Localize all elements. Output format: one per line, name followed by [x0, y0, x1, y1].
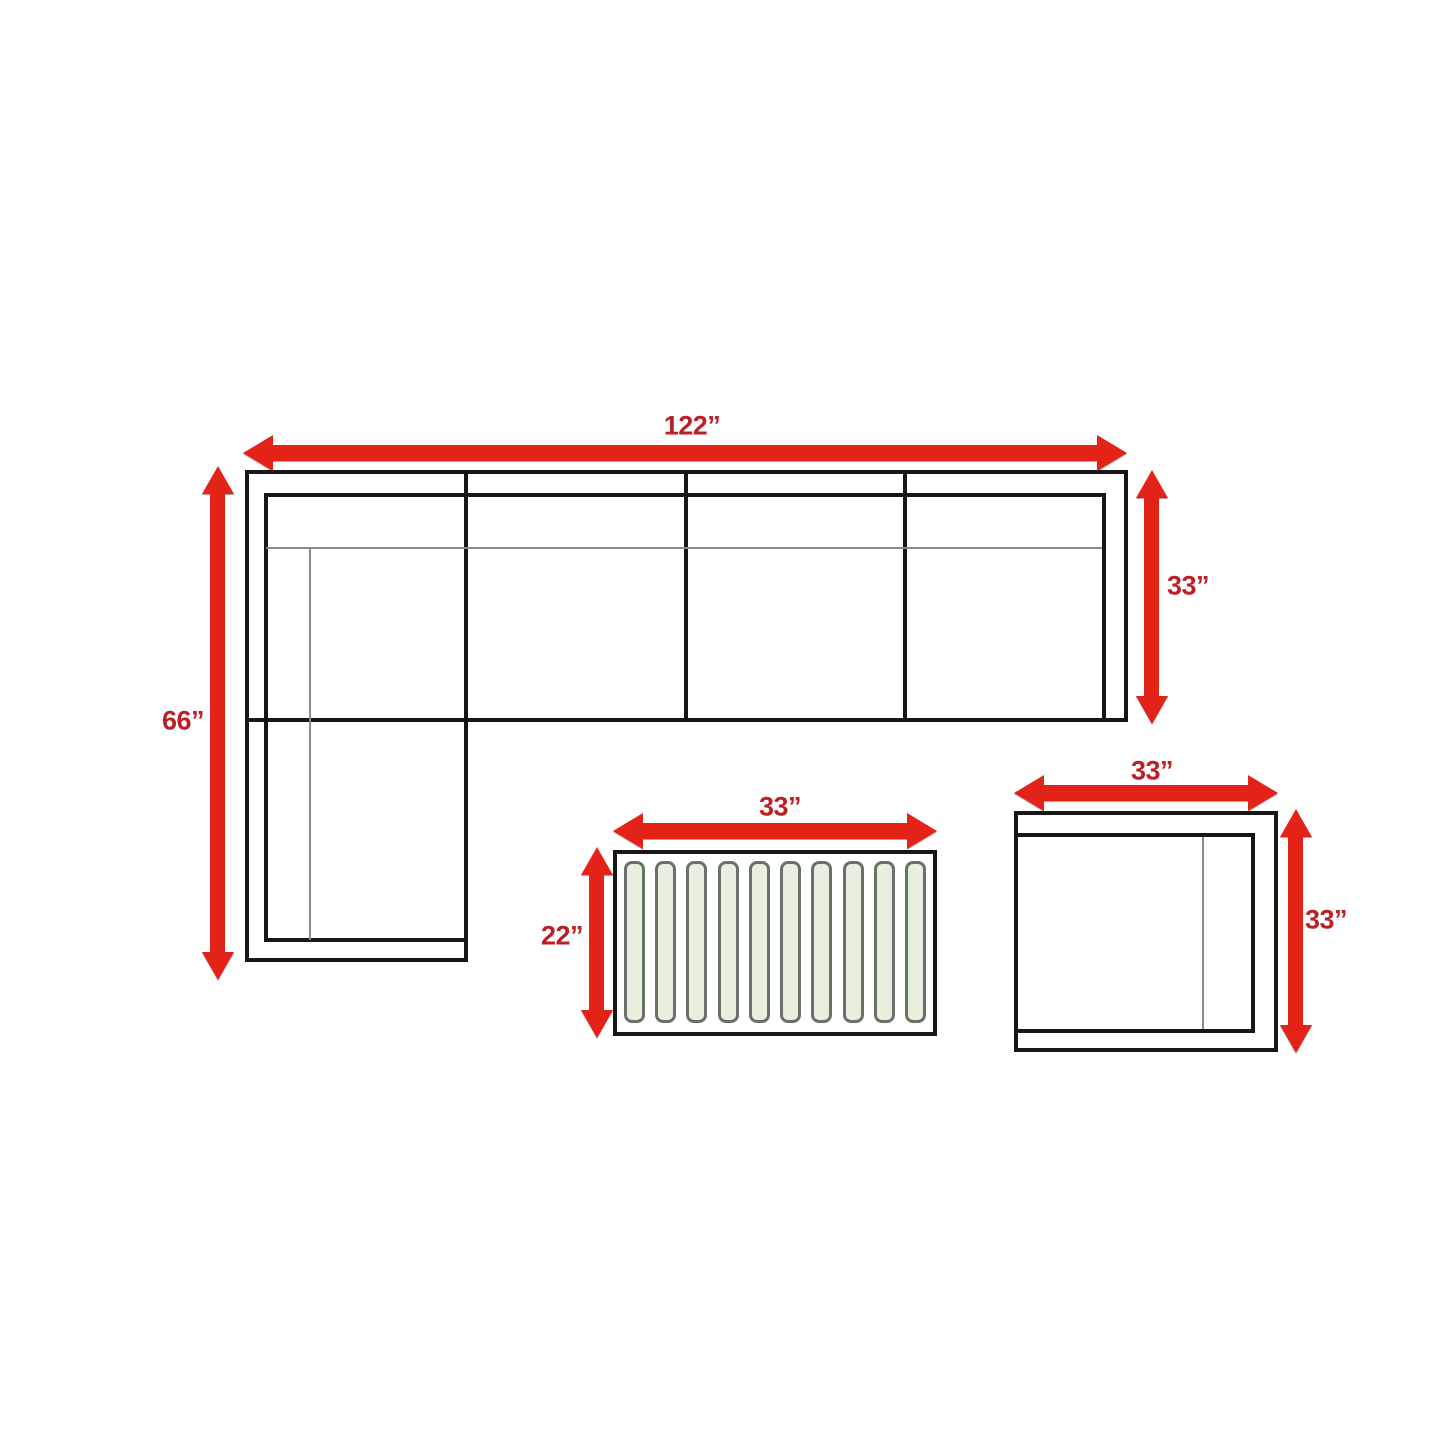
- arrow-down-head: [202, 952, 234, 980]
- table-slat: [624, 861, 645, 1023]
- sofa-section-divider: [684, 470, 688, 722]
- table-slat: [718, 861, 739, 1023]
- arrow-down-head: [1136, 696, 1168, 724]
- sofa-chaise-cushion-line: [309, 547, 311, 940]
- arrow-down-head: [581, 1010, 613, 1038]
- table-slat: [780, 861, 801, 1023]
- arrow-bar: [635, 823, 915, 839]
- arrow-bar: [589, 869, 604, 1016]
- table-slat: [905, 861, 926, 1023]
- table-slat: [749, 861, 770, 1023]
- table-slat: [811, 861, 832, 1023]
- table-depth-label: 22”: [541, 921, 583, 952]
- sofa-right-arm-line: [1102, 493, 1106, 722]
- arrow-right-head: [1248, 775, 1278, 811]
- chair-seat-outline: [1014, 833, 1255, 1033]
- sofa-cushion-line: [266, 547, 1102, 549]
- arrow-down-head: [1280, 1025, 1312, 1053]
- sofa-left-arm-line: [264, 493, 268, 942]
- coffee-table-slats: [624, 861, 926, 1023]
- chair-width-label: 33”: [1131, 756, 1173, 787]
- arrow-right-head: [907, 813, 937, 849]
- table-slat: [686, 861, 707, 1023]
- table-width-label: 33”: [759, 792, 801, 823]
- sofa-chaise-length-label: 66”: [162, 706, 204, 737]
- arrow-bar: [1288, 831, 1303, 1031]
- sofa-depth-label: 33”: [1167, 571, 1209, 602]
- arrow-bar: [1036, 785, 1256, 801]
- arrow-bar: [1144, 492, 1159, 702]
- dimension-diagram: 122” 66” 33” 33” 22” 33” 33”: [0, 0, 1445, 1445]
- chair-cushion-line: [1202, 837, 1204, 1029]
- arrow-bar: [265, 445, 1105, 461]
- sofa-chaise-outline: [245, 470, 468, 962]
- sofa-width-label: 122”: [664, 411, 721, 442]
- sofa-chaise-front-line: [264, 938, 468, 942]
- table-slat: [843, 861, 864, 1023]
- arrow-bar: [210, 488, 225, 958]
- chair-depth-label: 33”: [1305, 905, 1347, 936]
- table-slat: [655, 861, 676, 1023]
- arrow-right-head: [1097, 435, 1127, 471]
- table-slat: [874, 861, 895, 1023]
- sofa-section-divider: [903, 470, 907, 722]
